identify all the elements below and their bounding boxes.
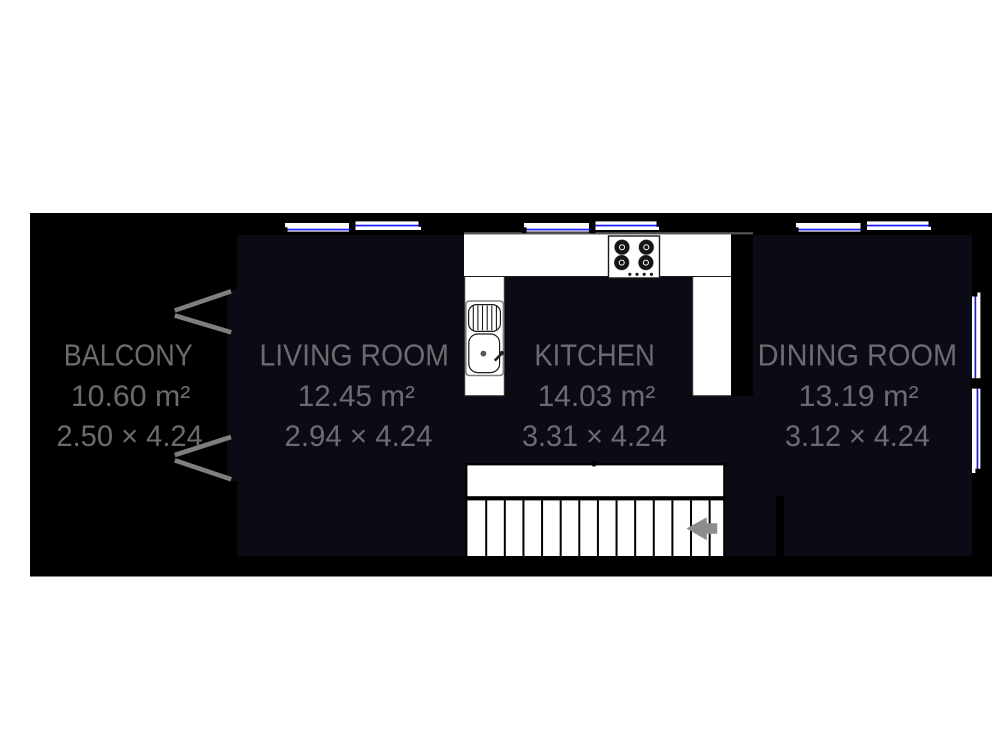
svg-text:BALCONY: BALCONY: [64, 338, 193, 373]
svg-text:13.19 m²: 13.19 m²: [799, 381, 919, 413]
svg-text:3.12 × 4.24: 3.12 × 4.24: [785, 421, 930, 453]
svg-text:12.45 m²: 12.45 m²: [298, 381, 415, 413]
svg-text:KITCHEN: KITCHEN: [534, 338, 655, 373]
svg-text:DINING ROOM: DINING ROOM: [758, 338, 958, 373]
svg-text:3.31 × 4.24: 3.31 × 4.24: [522, 421, 667, 453]
svg-text:LIVING ROOM: LIVING ROOM: [259, 338, 449, 373]
svg-text:14.03 m²: 14.03 m²: [538, 381, 656, 413]
svg-text:10.60 m²: 10.60 m²: [71, 381, 191, 413]
svg-text:2.50 × 4.24: 2.50 × 4.24: [56, 421, 202, 453]
svg-text:2.94 × 4.24: 2.94 × 4.24: [285, 421, 433, 453]
